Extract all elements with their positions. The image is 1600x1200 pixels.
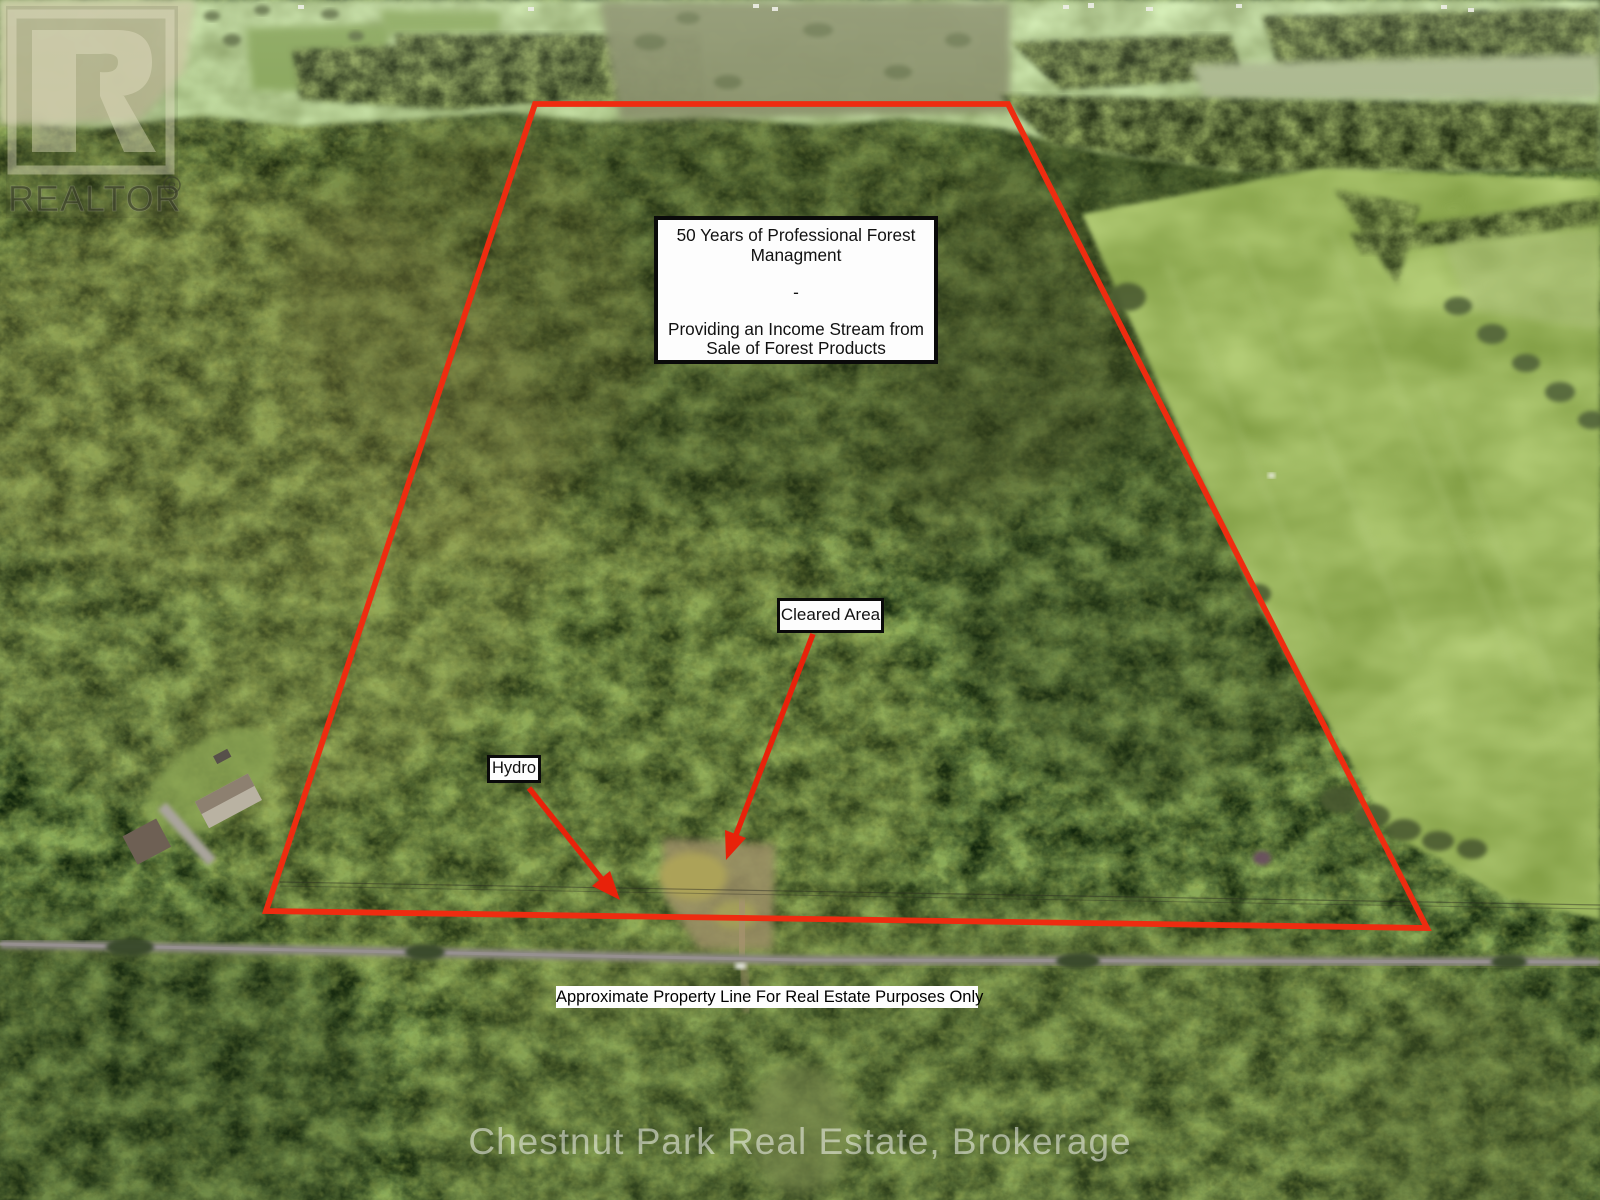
svg-text:R: R [168,181,176,193]
svg-text:REALTOR: REALTOR [8,178,182,219]
